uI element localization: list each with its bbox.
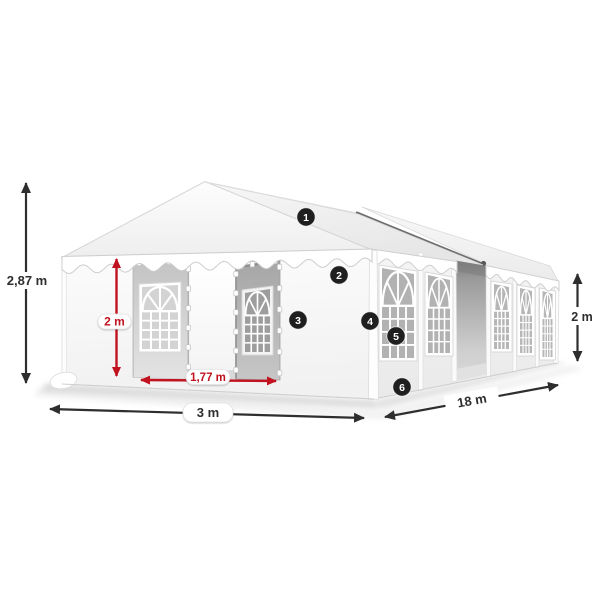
door-clip bbox=[186, 286, 190, 291]
callout-6: 6 bbox=[393, 378, 411, 396]
side-window-5 bbox=[540, 288, 556, 360]
door-clip bbox=[250, 262, 254, 267]
right-door-leaf bbox=[236, 260, 280, 380]
door-clip bbox=[186, 325, 190, 330]
door-clip bbox=[234, 348, 238, 353]
side-seam-2 bbox=[513, 273, 517, 372]
callout-3: 3 bbox=[289, 311, 307, 329]
product-diagram-page: 1 2 3 4 5 6 2,87 m bbox=[0, 0, 600, 600]
callout-5-number: 5 bbox=[393, 331, 399, 343]
open-side-passage bbox=[455, 261, 487, 382]
door-clip bbox=[186, 364, 190, 369]
rear-height-label: 2 m bbox=[571, 310, 593, 324]
callout-4: 4 bbox=[361, 312, 379, 330]
front-entrance bbox=[133, 258, 282, 381]
callout-1-number: 1 bbox=[303, 212, 309, 224]
callout-1: 1 bbox=[297, 208, 315, 226]
door-clip bbox=[277, 349, 281, 354]
side-window-2 bbox=[425, 272, 453, 356]
door-clip bbox=[234, 329, 238, 334]
door-clip bbox=[277, 264, 281, 269]
dimension-total-height: 2,87 m bbox=[4, 183, 50, 383]
door-clip bbox=[234, 291, 238, 296]
door-clip bbox=[277, 286, 281, 291]
tent-diagram: 1 2 3 4 5 6 2,87 m bbox=[0, 0, 600, 600]
callout-3-number: 3 bbox=[295, 315, 301, 327]
door-clip bbox=[234, 367, 238, 372]
door-clip bbox=[234, 310, 238, 315]
passage-right-edge bbox=[486, 266, 491, 379]
callout-5: 5 bbox=[387, 327, 405, 345]
front-width-label: 3 m bbox=[197, 405, 219, 420]
callout-2: 2 bbox=[330, 266, 348, 284]
right-door-window bbox=[242, 286, 273, 355]
door-clip bbox=[186, 306, 190, 311]
side-window-1 bbox=[379, 265, 417, 361]
dimension-rear-height: 2 m bbox=[563, 274, 600, 361]
door-clip bbox=[234, 271, 238, 276]
door-clip bbox=[277, 307, 281, 312]
left-door-leaf bbox=[133, 260, 188, 380]
left-door-window bbox=[139, 282, 181, 352]
callout-2-number: 2 bbox=[336, 270, 342, 282]
door-clip bbox=[186, 345, 190, 350]
side-seam-1 bbox=[419, 253, 424, 391]
side-seam-3 bbox=[536, 277, 539, 368]
door-clip bbox=[277, 328, 281, 333]
door-width-label: 1,77 m bbox=[190, 372, 226, 384]
left-corner-seam bbox=[62, 258, 67, 384]
side-window-4 bbox=[517, 285, 535, 356]
entrance-opening bbox=[188, 258, 236, 381]
total-height-label: 2,87 m bbox=[7, 273, 47, 288]
door-clip bbox=[277, 370, 281, 375]
side-window-3 bbox=[491, 281, 512, 352]
callout-6-number: 6 bbox=[399, 382, 405, 394]
front-wall-height-label: 2 m bbox=[104, 315, 125, 329]
callout-4-number: 4 bbox=[367, 316, 373, 328]
